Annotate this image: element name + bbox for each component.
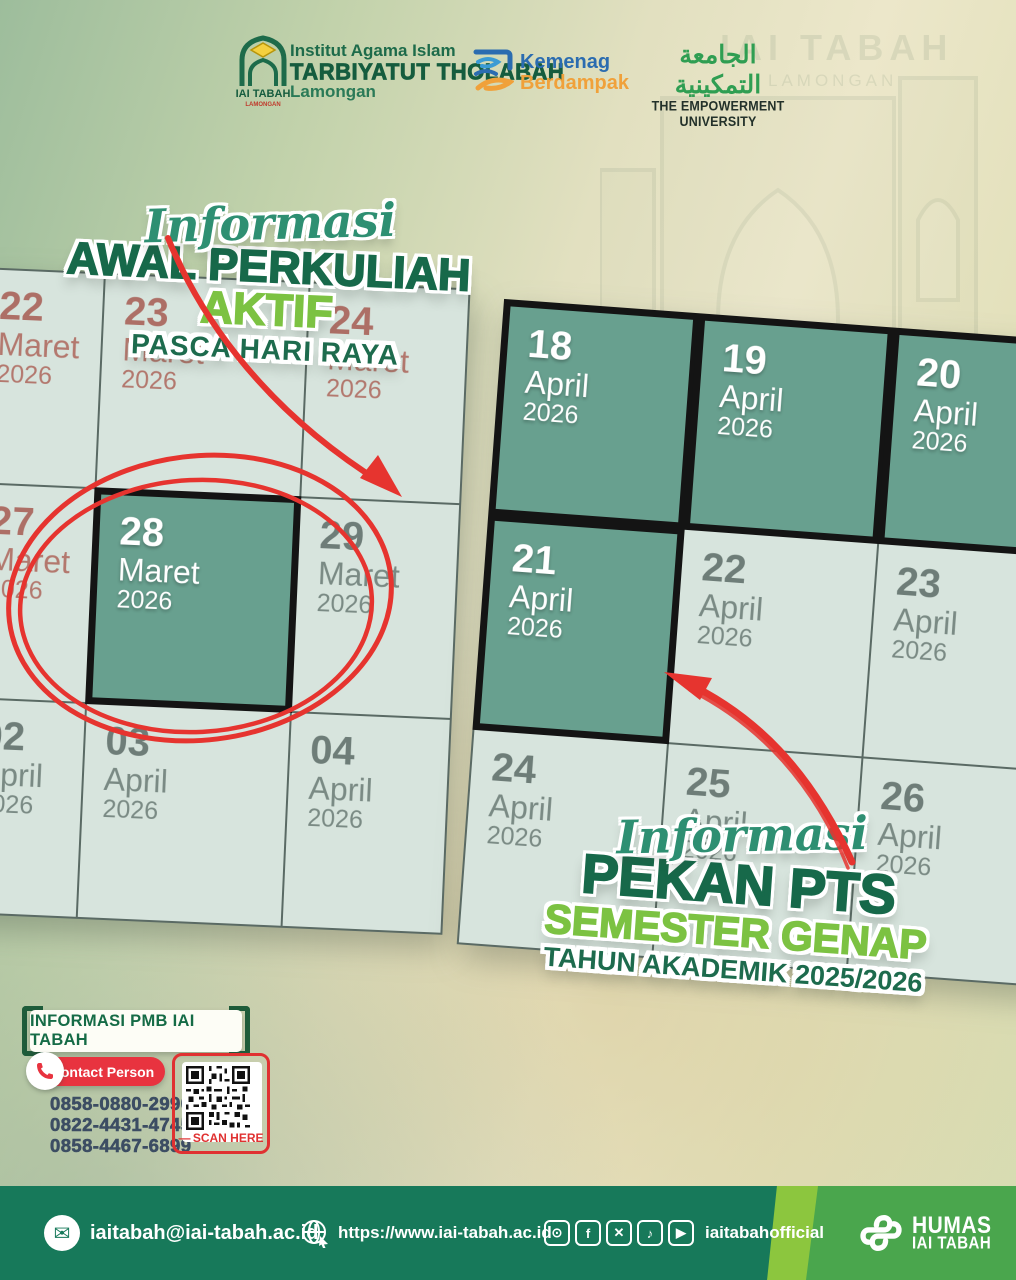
calendar-cell-04-april: 04April2026 — [281, 711, 452, 935]
facebook-icon: f — [575, 1220, 601, 1246]
phone-number: 0858-4467-6899 — [50, 1136, 191, 1157]
cell-year: 2026 — [307, 805, 446, 837]
calendar-cell-02-april: 02April2026 — [0, 697, 87, 919]
right-script-word: Informasi — [616, 806, 868, 864]
email-icon: ✉ — [44, 1215, 80, 1251]
cell-year: 2026 — [0, 790, 81, 820]
globe-icon — [300, 1218, 330, 1248]
cell-year: 2026 — [326, 375, 465, 407]
empowerment-university-block: الجامعة التمكينية THE EMPOWERMENT UNIVER… — [643, 40, 793, 128]
cell-day: 27 — [0, 501, 94, 547]
iai-tabah-logo: IAI TABAH LAMONGAN — [234, 34, 292, 110]
empowerment-english: THE EMPOWERMENT UNIVERSITY — [643, 99, 793, 130]
website-url: https://www.iai-tabah.ac.id — [338, 1223, 552, 1243]
calendar-cell-29-maret: 29Maret2026 — [290, 496, 461, 720]
qr-code-frame: — SCAN HERE — — [172, 1053, 270, 1154]
calendar-cell-27-maret: 27Maret2026 — [0, 482, 97, 704]
calendar-cell-28-maret: 28Maret2026 — [85, 487, 301, 713]
qr-code — [182, 1062, 262, 1142]
phone-number: 0822-4431-4745 — [50, 1115, 191, 1136]
calendar-cell-03-april: 03April2026 — [76, 702, 292, 928]
left-announcement-title: Informasi AWAL PERKULIAH AKTIF PASCA HAR… — [15, 185, 522, 377]
cell-month: April — [0, 757, 83, 795]
scan-here-label: — SCAN HERE — — [175, 1131, 267, 1159]
phone-icon — [26, 1052, 64, 1090]
left-script-word: Informasi — [144, 193, 397, 254]
cell-year: 2026 — [316, 590, 455, 622]
pmb-info-label-box: INFORMASI PMB IAI TABAH — [30, 1010, 242, 1052]
tiktok-icon: ♪ — [637, 1220, 663, 1246]
empowerment-arabic: الجامعة التمكينية — [643, 40, 793, 100]
poster: IAI TABAH LAMONGAN IAI TABAH IAI TABAH L… — [0, 0, 1016, 1280]
cell-month: Maret — [0, 542, 92, 580]
calendar-cell-20-april: 20April2026 — [877, 327, 1016, 558]
kemenag-line1: Kemenag — [520, 52, 629, 73]
iai-logo-label: IAI TABAH — [236, 88, 291, 100]
calendar-cell-23-april: 23April2026 — [861, 542, 1016, 773]
pmb-info-label: INFORMASI PMB IAI TABAH — [30, 1010, 242, 1052]
social-handle: iaitabahofficial — [705, 1223, 824, 1243]
right-announcement-title: Informasi PEKAN PTS SEMESTER GENAP TAHUN… — [492, 791, 983, 1004]
calendar-cell-18-april: 18April2026 — [488, 299, 700, 530]
iai-logo-sublabel: LAMONGAN — [245, 102, 280, 108]
instagram-icon: ⊙ — [544, 1220, 570, 1246]
kemenag-line2: Berdampak — [520, 73, 629, 94]
footer-website: https://www.iai-tabah.ac.id — [300, 1186, 552, 1280]
contact-person-label: Contact Person — [51, 1064, 154, 1080]
email-address: iaitabah@iai-tabah.ac.id — [90, 1222, 318, 1245]
footer-email: ✉ iaitabah@iai-tabah.ac.id — [44, 1186, 318, 1280]
x-icon: ✕ — [606, 1220, 632, 1246]
phone-number: 0858-0880-2990 — [50, 1094, 191, 1115]
calendar-cell-22-april: 22April2026 — [667, 528, 879, 759]
footer-social: ⊙ f ✕ ♪ ▶ iaitabahofficial — [544, 1186, 824, 1280]
calendar-cell-21-april: 21April2026 — [472, 513, 684, 744]
humas-logo-block: HUMAS IAI TABAH — [858, 1186, 992, 1280]
kemenag-logo-icon — [472, 48, 514, 94]
cell-year: 2026 — [911, 427, 1016, 465]
calendar-cell-19-april: 19April2026 — [683, 313, 895, 544]
footer-bar: ✉ iaitabah@iai-tabah.ac.id https://www.i… — [0, 1186, 1016, 1280]
cell-year: 2026 — [0, 575, 90, 605]
cell-day: 02 — [0, 715, 84, 761]
phone-number-list: 0858-0880-29900822-4431-47450858-4467-68… — [50, 1094, 191, 1157]
humas-logo-icon — [858, 1207, 904, 1259]
youtube-icon: ▶ — [668, 1220, 694, 1246]
kemenag-text-block: Kemenag Berdampak — [520, 52, 629, 94]
humas-line2: IAI TABAH — [912, 1235, 992, 1252]
cell-year: 2026 — [0, 361, 100, 391]
